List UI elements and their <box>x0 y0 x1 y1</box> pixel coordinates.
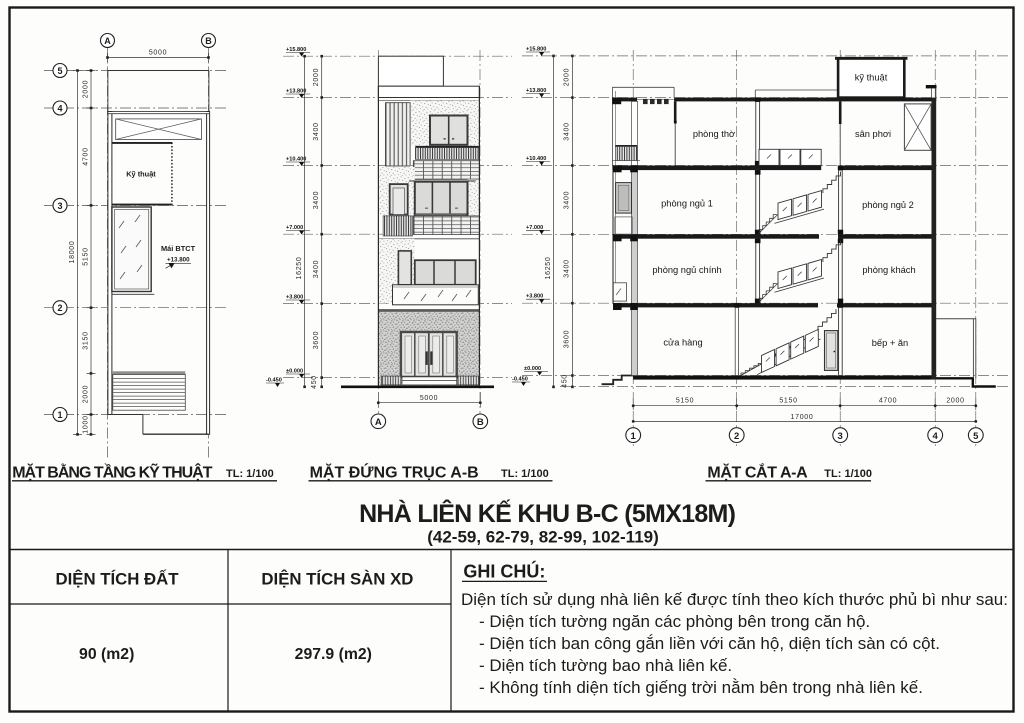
svg-text:18000: 18000 <box>69 241 76 264</box>
svg-text:1000: 1000 <box>83 415 90 433</box>
svg-text:- Diện tích tường ngăn các phò: - Diện tích tường ngăn các phòng bên tro… <box>479 612 870 631</box>
svg-text:3400: 3400 <box>313 260 320 278</box>
svg-text:2: 2 <box>57 303 62 313</box>
svg-text:(42-59, 62-79, 82-99, 102-119): (42-59, 62-79, 82-99, 102-119) <box>427 528 659 547</box>
svg-text:16250: 16250 <box>296 257 303 280</box>
svg-text:NHÀ LIÊN KẾ KHU B-C (5MX18M): NHÀ LIÊN KẾ KHU B-C (5MX18M) <box>359 498 736 528</box>
svg-text:297.9 (m2): 297.9 (m2) <box>295 646 372 663</box>
svg-text:3400: 3400 <box>313 122 320 140</box>
svg-text:TL: 1/100: TL: 1/100 <box>501 468 549 480</box>
svg-text:3150: 3150 <box>83 331 90 349</box>
svg-text:- Diện tích ban công gắn liền: - Diện tích ban công gắn liền với căn hộ… <box>479 634 940 653</box>
svg-text:3400: 3400 <box>564 259 571 277</box>
svg-text:2000: 2000 <box>83 385 90 403</box>
svg-text:kỹ thuật: kỹ thuật <box>855 73 888 83</box>
svg-text:TL: 1/100: TL: 1/100 <box>824 468 872 480</box>
svg-text:4: 4 <box>57 104 62 114</box>
svg-text:2000: 2000 <box>946 398 964 405</box>
svg-text:3400: 3400 <box>564 122 571 140</box>
svg-text:3600: 3600 <box>313 331 320 349</box>
svg-text:5: 5 <box>973 431 979 442</box>
svg-text:17000: 17000 <box>791 414 814 421</box>
svg-text:phòng ngủ chính: phòng ngủ chính <box>652 265 721 275</box>
svg-text:Kỹ thuật: Kỹ thuật <box>126 170 156 179</box>
svg-text:+7.000: +7.000 <box>526 225 543 231</box>
svg-text:phòng khách: phòng khách <box>862 265 915 275</box>
svg-text:+13.800: +13.800 <box>167 257 190 264</box>
svg-text:3600: 3600 <box>564 330 571 348</box>
svg-text:phòng thờ: phòng thờ <box>693 129 735 139</box>
svg-text:cửa hàng: cửa hàng <box>663 338 702 348</box>
svg-text:5000: 5000 <box>149 50 167 57</box>
svg-text:+10.400: +10.400 <box>526 156 546 162</box>
svg-text:- Không tính diện tích giếng t: - Không tính diện tích giếng trời nằm bê… <box>479 678 923 697</box>
svg-text:TL: 1/100: TL: 1/100 <box>226 468 274 480</box>
svg-text:+15.800: +15.800 <box>526 47 546 53</box>
svg-text:DIỆN TÍCH ĐẤT: DIỆN TÍCH ĐẤT <box>55 570 179 589</box>
svg-text:4700: 4700 <box>879 398 897 405</box>
svg-text:450: 450 <box>562 374 569 388</box>
svg-text:sân phơi: sân phơi <box>855 129 891 139</box>
svg-text:+7.000: +7.000 <box>286 225 303 231</box>
svg-text:Diện tích sử dụng nhà liên kế: Diện tích sử dụng nhà liên kế được tính … <box>461 590 1008 609</box>
svg-text:MẶT ĐỨNG TRỤC A-B: MẶT ĐỨNG TRỤC A-B <box>310 463 479 482</box>
svg-text:3400: 3400 <box>564 191 571 209</box>
svg-text:90 (m2): 90 (m2) <box>79 646 134 663</box>
svg-text:5150: 5150 <box>83 247 90 265</box>
svg-text:3: 3 <box>838 431 843 442</box>
svg-text:5000: 5000 <box>420 395 438 402</box>
svg-text:5150: 5150 <box>676 398 694 405</box>
svg-text:3: 3 <box>57 201 62 211</box>
svg-text:A: A <box>375 417 382 428</box>
svg-text:2000: 2000 <box>313 68 320 86</box>
svg-text:+13.800: +13.800 <box>286 89 306 95</box>
svg-text:MẶT BẰNG TẦNG KỸ THUẬT: MẶT BẰNG TẦNG KỸ THUẬT <box>12 462 213 482</box>
svg-text:3400: 3400 <box>313 191 320 209</box>
svg-text:4700: 4700 <box>83 147 90 165</box>
svg-text:+3.800: +3.800 <box>286 295 303 301</box>
svg-text:B: B <box>477 417 484 428</box>
svg-text:±0.000: ±0.000 <box>524 366 541 372</box>
svg-text:phòng ngủ 1: phòng ngủ 1 <box>661 199 713 209</box>
svg-text:MẶT CẮT A-A: MẶT CẮT A-A <box>707 463 808 482</box>
svg-text:+10.400: +10.400 <box>286 157 306 163</box>
svg-text:4: 4 <box>933 431 939 442</box>
svg-text:450: 450 <box>311 375 318 389</box>
svg-text:B: B <box>205 36 212 46</box>
svg-text:1: 1 <box>57 410 62 420</box>
svg-text:GHI CHÚ:: GHI CHÚ: <box>463 561 545 582</box>
svg-text:+13.800: +13.800 <box>526 88 546 94</box>
svg-text:±0.000: ±0.000 <box>286 369 303 375</box>
svg-text:2000: 2000 <box>564 68 571 86</box>
svg-text:-0.450: -0.450 <box>512 377 528 383</box>
svg-text:1: 1 <box>631 431 637 442</box>
svg-text:+3.800: +3.800 <box>526 294 543 300</box>
svg-text:Mái BTCT: Mái BTCT <box>161 244 196 253</box>
svg-text:16250: 16250 <box>545 257 552 280</box>
svg-text:5150: 5150 <box>779 398 797 405</box>
svg-text:-0.450: -0.450 <box>266 378 282 384</box>
svg-text:- Diện tích tường bao nhà liên: - Diện tích tường bao nhà liên kế. <box>479 656 732 675</box>
svg-text:2000: 2000 <box>83 80 90 98</box>
svg-text:2: 2 <box>734 431 739 442</box>
svg-text:A: A <box>104 36 111 46</box>
svg-text:5: 5 <box>57 66 62 76</box>
svg-text:bếp + ăn: bếp + ăn <box>872 338 908 348</box>
svg-text:+15.800: +15.800 <box>286 47 306 53</box>
svg-text:DIỆN TÍCH SÀN XD: DIỆN TÍCH SÀN XD <box>261 570 413 589</box>
svg-text:phòng ngủ 2: phòng ngủ 2 <box>862 200 914 210</box>
